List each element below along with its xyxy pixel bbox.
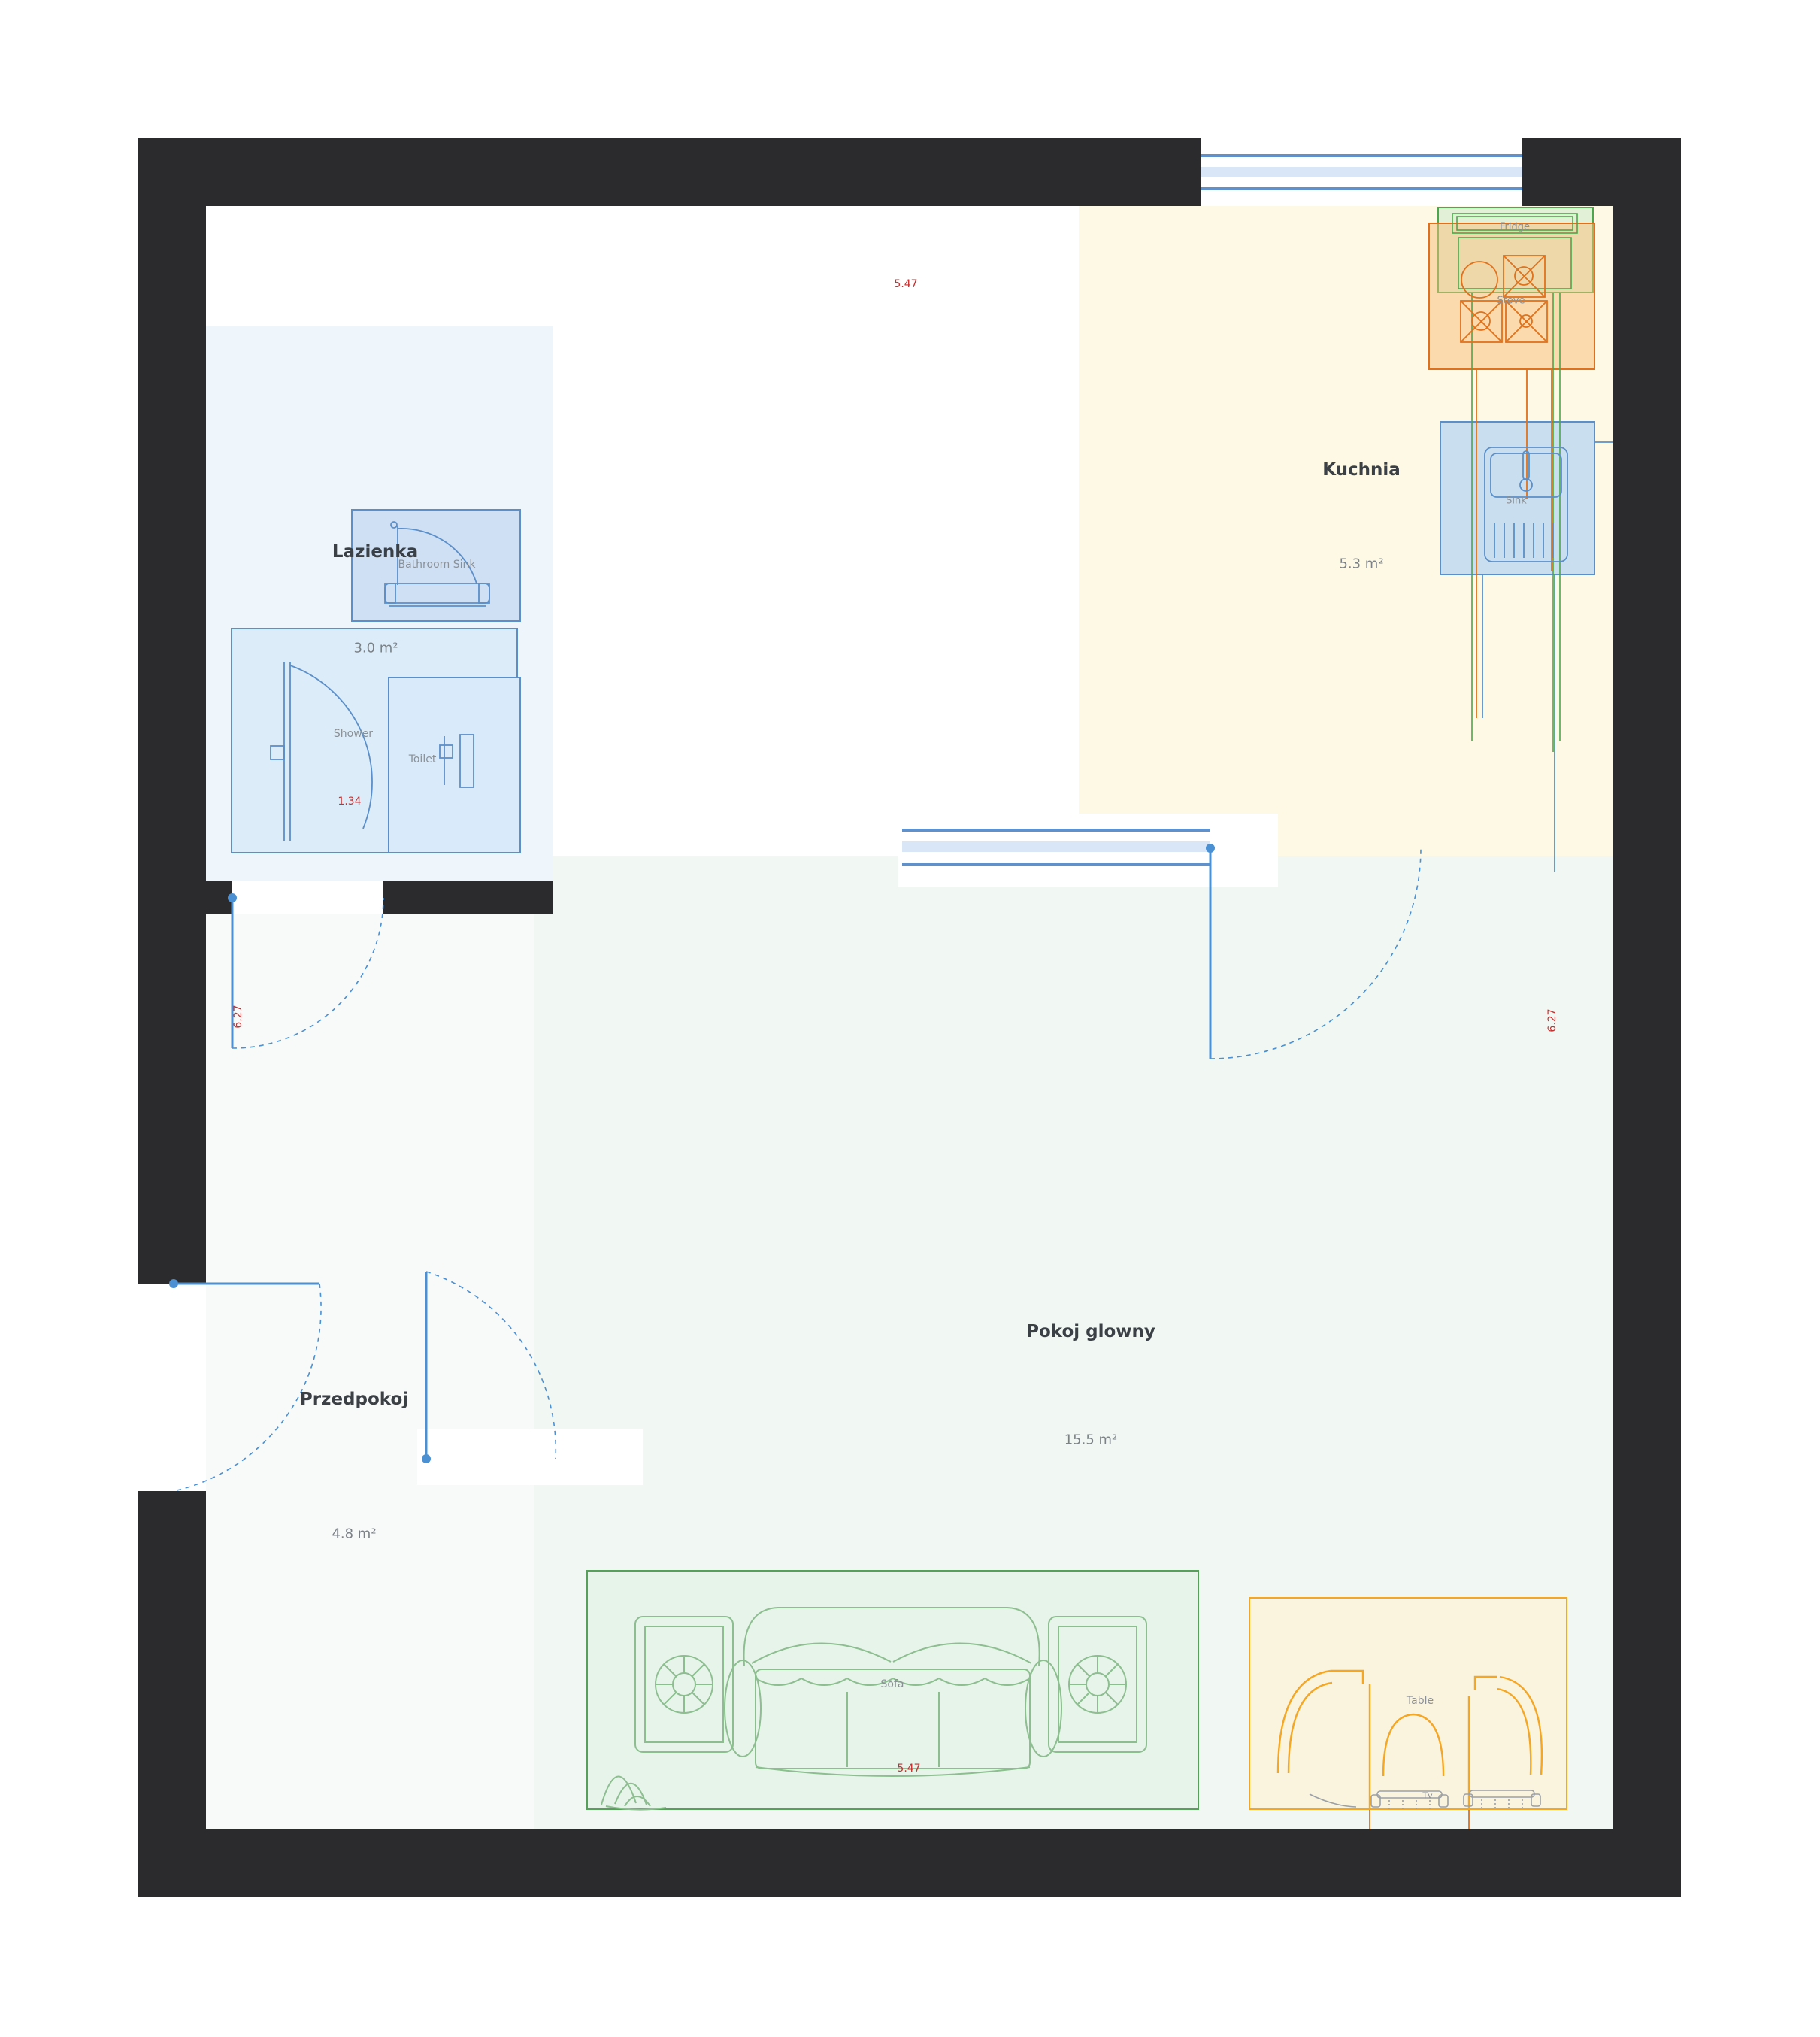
label-bathroom-sink: Bathroom Sink (398, 559, 476, 571)
dimension-top-width: 5.47 (894, 278, 917, 290)
shower-sketch (271, 662, 372, 841)
room-title-pokoj-glowny: Pokoj glowny (1026, 1322, 1155, 1341)
stove-burners-sketch (1461, 256, 1552, 718)
dimension-right-height: 6.27 (1546, 1008, 1558, 1032)
bathroom-door (228, 893, 383, 1048)
toilet-sketch (440, 735, 474, 787)
dimension-bottom-width: 5.47 (897, 1763, 920, 1775)
sofa-right-plant-sketch (1310, 1794, 1356, 1807)
sofa-sketch (601, 1608, 1356, 1810)
dimension-bathroom-width: 1.34 (338, 796, 361, 808)
tv-unit-left (1371, 1791, 1448, 1809)
hallway-door (422, 1272, 556, 1463)
main-room-door-hinge (1206, 844, 1215, 853)
floor-plan: Lazienka 3.0 m² Bathroom Sink Shower Toi… (0, 0, 1820, 2037)
main-room-door-swing-arc (1210, 848, 1421, 1059)
burner-cell-2 (1461, 301, 1502, 342)
room-area-pokoj-glowny: 15.5 m² (1064, 1432, 1118, 1448)
bathroom-door-hinge (228, 893, 237, 902)
label-toilet: Toilet (409, 753, 437, 765)
room-area-przedpokoj: 4.8 m² (332, 1526, 376, 1542)
label-tv: Tv (1422, 1791, 1432, 1801)
burner-cell-1 (1504, 256, 1545, 297)
burner-cell-3 (1506, 301, 1547, 342)
dimension-left-height: 6.27 (232, 1005, 244, 1028)
room-title-kuchnia: Kuchnia (1322, 460, 1401, 480)
entrance-door-hinge (169, 1279, 178, 1288)
label-fridge: Fridge (1500, 222, 1530, 233)
entrance-door (169, 1279, 321, 1491)
hallway-door-swing-arc (426, 1272, 556, 1459)
label-kitchen-sink: Sink (1506, 496, 1527, 507)
kitchen-sink-sketch (1482, 442, 1613, 872)
room-title-przedpokoj: Przedpokoj (300, 1390, 408, 1409)
tv-unit-right (1464, 1790, 1540, 1808)
fridge-sketch (1452, 214, 1577, 752)
label-sofa: Sofa (881, 1678, 904, 1690)
room-area-lazienka: 3.0 m² (353, 641, 398, 656)
label-shower: Shower (334, 728, 373, 740)
sofa-left-plant-sketch (601, 1776, 666, 1809)
sofa-left-rosette-panel (635, 1617, 733, 1752)
entrance-door-swing-arc (174, 1284, 321, 1491)
tv-units-sketch (1371, 1790, 1540, 1809)
sofa-body (725, 1608, 1061, 1776)
sofa-right-rosette-panel (1049, 1617, 1146, 1752)
hallway-door-hinge (422, 1454, 431, 1463)
table-center-arch (1383, 1714, 1443, 1776)
table-left-chair (1278, 1671, 1370, 1810)
room-area-kuchnia: 5.3 m² (1339, 556, 1383, 572)
main-room-door (1206, 844, 1421, 1059)
label-stove: Stove (1497, 296, 1525, 307)
bathroom-door-swing-arc (232, 898, 383, 1048)
label-table: Table (1407, 1695, 1434, 1707)
